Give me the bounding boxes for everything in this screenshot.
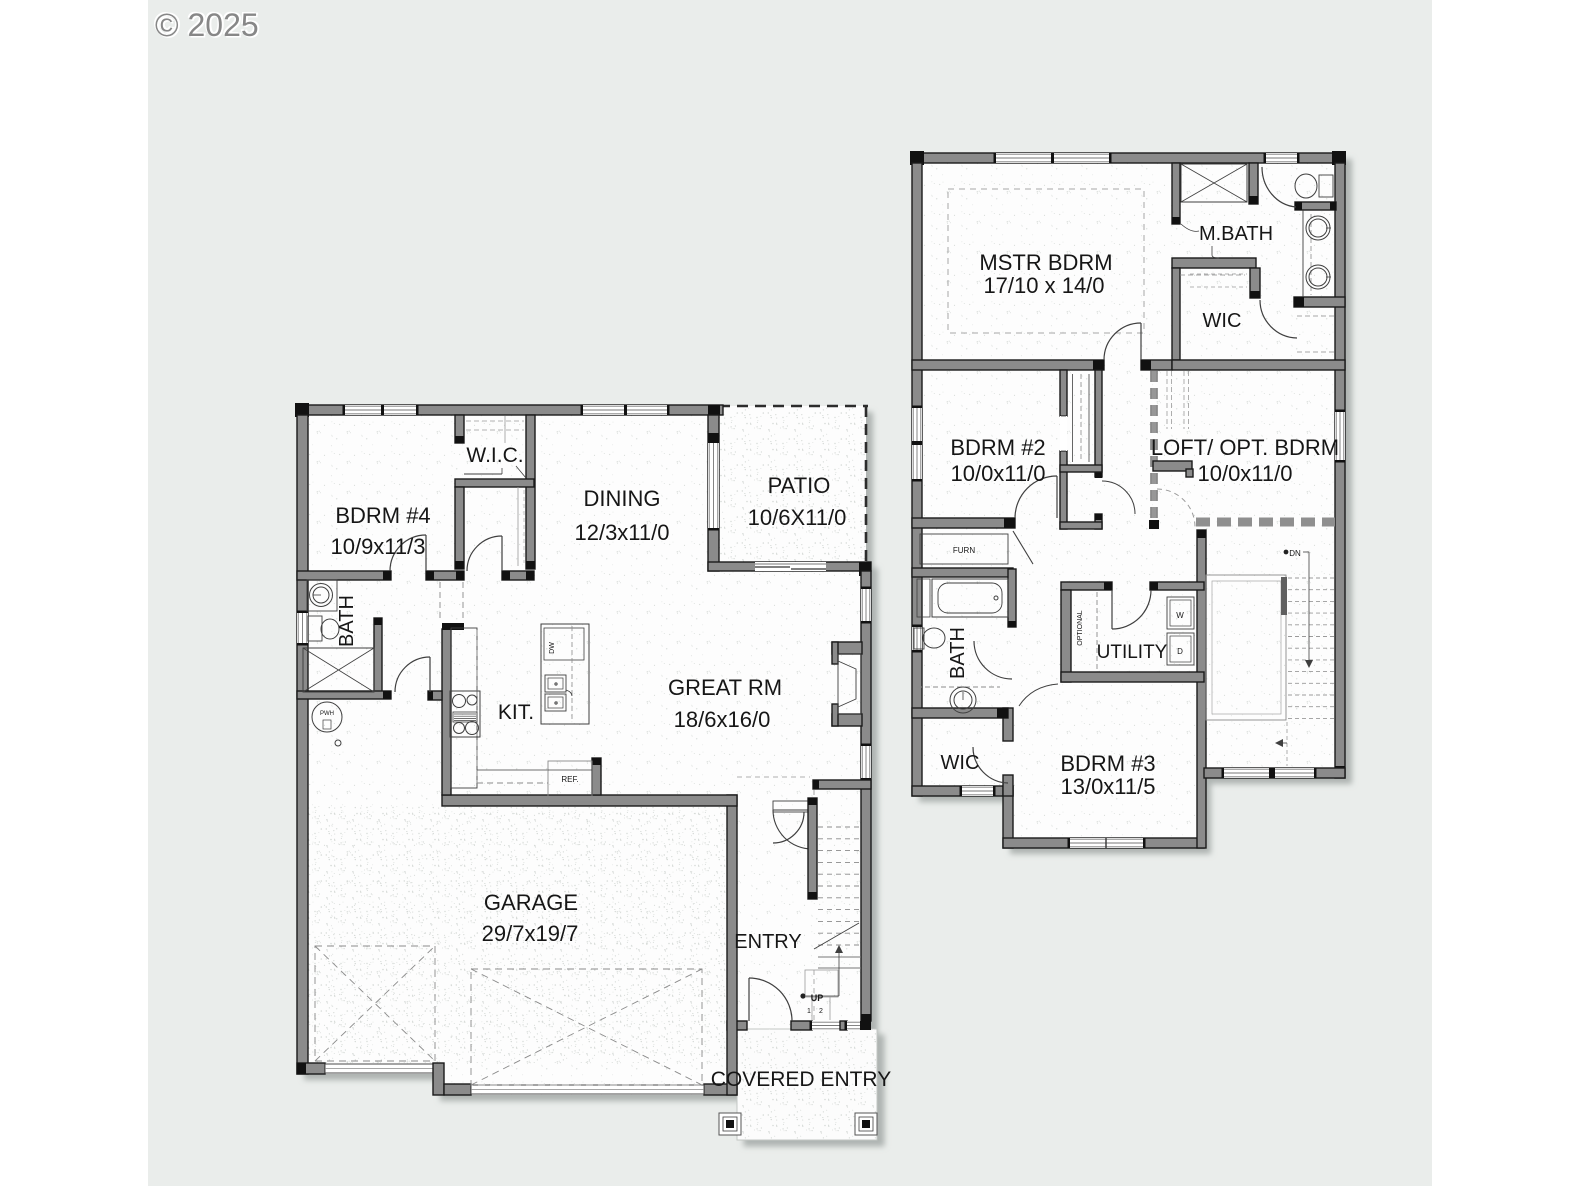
svg-text:13/0x11/5: 13/0x11/5 <box>1060 774 1155 799</box>
svg-text:2: 2 <box>819 1008 823 1015</box>
svg-text:18/6x16/0: 18/6x16/0 <box>674 707 771 732</box>
svg-text:10/0x11/0: 10/0x11/0 <box>1197 461 1292 486</box>
svg-text:17/10 x 14/0: 17/10 x 14/0 <box>983 273 1104 298</box>
svg-text:BDRM #4: BDRM #4 <box>335 503 430 528</box>
svg-text:WIC: WIC <box>941 752 980 774</box>
svg-text:DINING: DINING <box>584 486 661 511</box>
svg-text:M.BATH: M.BATH <box>1199 223 1273 245</box>
svg-text:10/9x11/3: 10/9x11/3 <box>330 534 425 559</box>
svg-text:© 2025: © 2025 <box>155 7 259 43</box>
svg-text:OPTIONAL: OPTIONAL <box>1077 610 1084 646</box>
svg-text:10/6X11/0: 10/6X11/0 <box>748 505 847 530</box>
svg-text:DW: DW <box>549 642 556 654</box>
svg-text:FURN: FURN <box>953 546 975 555</box>
svg-text:W.I.C.: W.I.C. <box>466 444 523 467</box>
svg-text:PWH: PWH <box>320 711 334 717</box>
svg-text:WIC: WIC <box>1203 310 1242 332</box>
svg-text:DN: DN <box>1289 549 1301 558</box>
svg-text:UP: UP <box>811 993 824 1003</box>
svg-text:GARAGE: GARAGE <box>484 890 578 915</box>
svg-text:D: D <box>1177 647 1183 656</box>
svg-text:REF.: REF. <box>561 775 578 784</box>
svg-text:PATIO: PATIO <box>768 473 831 498</box>
svg-text:BDRM #3: BDRM #3 <box>1060 751 1155 776</box>
svg-text:12/3x11/0: 12/3x11/0 <box>574 520 669 545</box>
svg-text:UTILITY: UTILITY <box>1097 642 1168 663</box>
svg-text:BATH: BATH <box>947 627 969 679</box>
svg-text:1: 1 <box>807 1008 811 1015</box>
svg-text:COVERED ENTRY: COVERED ENTRY <box>711 1068 891 1091</box>
svg-text:BDRM #2: BDRM #2 <box>950 435 1045 460</box>
svg-text:MSTR BDRM: MSTR BDRM <box>979 250 1112 275</box>
svg-text:ENTRY: ENTRY <box>734 931 801 953</box>
svg-text:LOFT/ OPT. BDRM: LOFT/ OPT. BDRM <box>1151 435 1339 460</box>
svg-text:W: W <box>1176 611 1184 620</box>
svg-text:10/0x11/0: 10/0x11/0 <box>950 461 1045 486</box>
svg-text:KIT.: KIT. <box>498 701 534 724</box>
svg-text:BATH: BATH <box>336 595 358 647</box>
svg-text:GREAT RM: GREAT RM <box>668 675 782 700</box>
svg-text:29/7x19/7: 29/7x19/7 <box>482 921 579 946</box>
